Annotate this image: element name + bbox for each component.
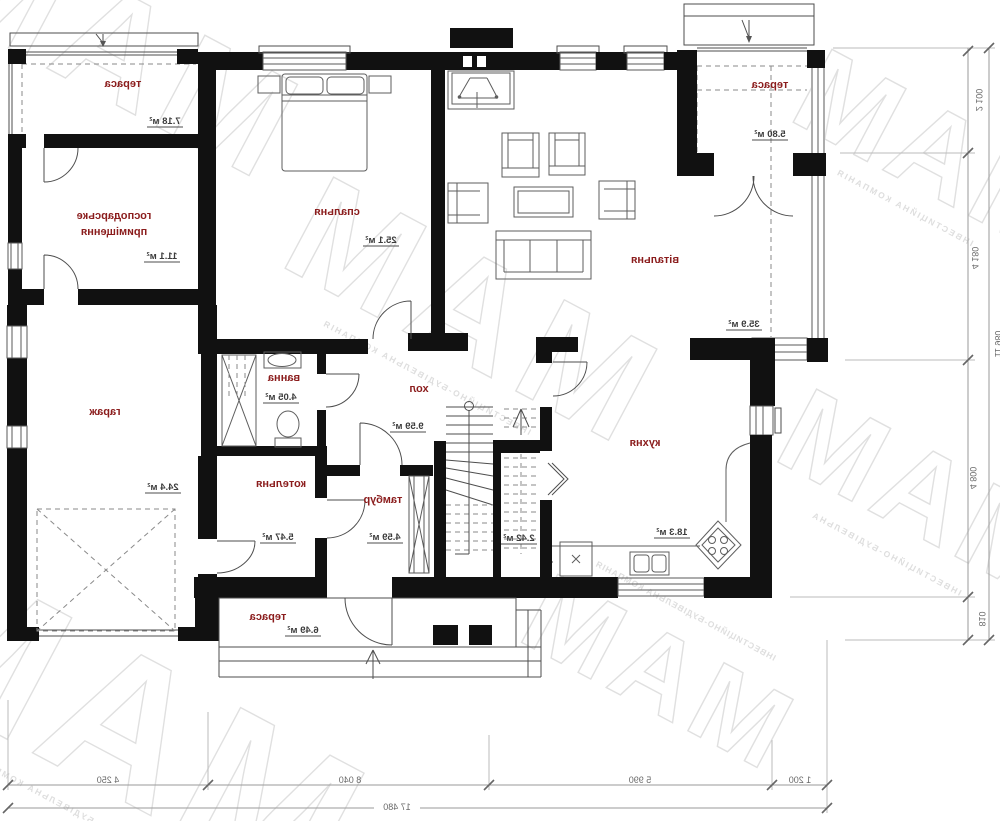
svg-text:5.80 м²: 5.80 м² <box>754 129 785 140</box>
svg-text:24.4 м²: 24.4 м² <box>147 482 178 493</box>
svg-text:2.42 м²: 2.42 м² <box>503 533 534 544</box>
svg-text:9.59 м²: 9.59 м² <box>392 421 423 432</box>
svg-text:4.59 м²: 4.59 м² <box>369 532 400 543</box>
svg-text:11 980: 11 980 <box>993 331 1000 358</box>
svg-text:4 800: 4 800 <box>968 467 978 490</box>
svg-text:1 200: 1 200 <box>789 775 812 785</box>
svg-text:тераса: тераса <box>104 78 142 90</box>
svg-text:810: 810 <box>977 611 987 626</box>
svg-text:спальня: спальня <box>314 206 360 218</box>
svg-text:тамбур: тамбур <box>363 494 402 506</box>
svg-text:4 250: 4 250 <box>97 775 120 785</box>
svg-text:гараж: гараж <box>89 406 121 418</box>
svg-text:8 040: 8 040 <box>339 775 362 785</box>
svg-text:35.9 м²: 35.9 м² <box>728 319 759 330</box>
svg-text:25.1 м²: 25.1 м² <box>365 235 396 246</box>
svg-text:господарське: господарське <box>77 210 152 222</box>
svg-text:вітальня: вітальня <box>631 254 679 266</box>
svg-text:5.47 м²: 5.47 м² <box>262 532 293 543</box>
svg-text:11.1 м²: 11.1 м² <box>147 251 178 262</box>
svg-text:тераса: тераса <box>751 79 789 91</box>
svg-text:18.3 м²: 18.3 м² <box>656 527 687 538</box>
svg-text:ванна: ванна <box>267 372 300 384</box>
svg-text:7.18 м²: 7.18 м² <box>149 116 180 127</box>
svg-text:котельня: котельня <box>256 478 306 490</box>
svg-text:2 100: 2 100 <box>974 89 984 112</box>
svg-text:17 480: 17 480 <box>383 802 411 812</box>
svg-text:4 180: 4 180 <box>970 247 980 270</box>
svg-text:кухня: кухня <box>630 437 661 449</box>
svg-text:хол: хол <box>409 383 428 395</box>
svg-text:приміщення: приміщення <box>81 226 147 238</box>
svg-text:тераса: тераса <box>249 611 287 623</box>
svg-text:4.05 м²: 4.05 м² <box>265 392 296 403</box>
svg-text:6.49 м²: 6.49 м² <box>287 625 318 636</box>
svg-text:5 990: 5 990 <box>629 775 652 785</box>
